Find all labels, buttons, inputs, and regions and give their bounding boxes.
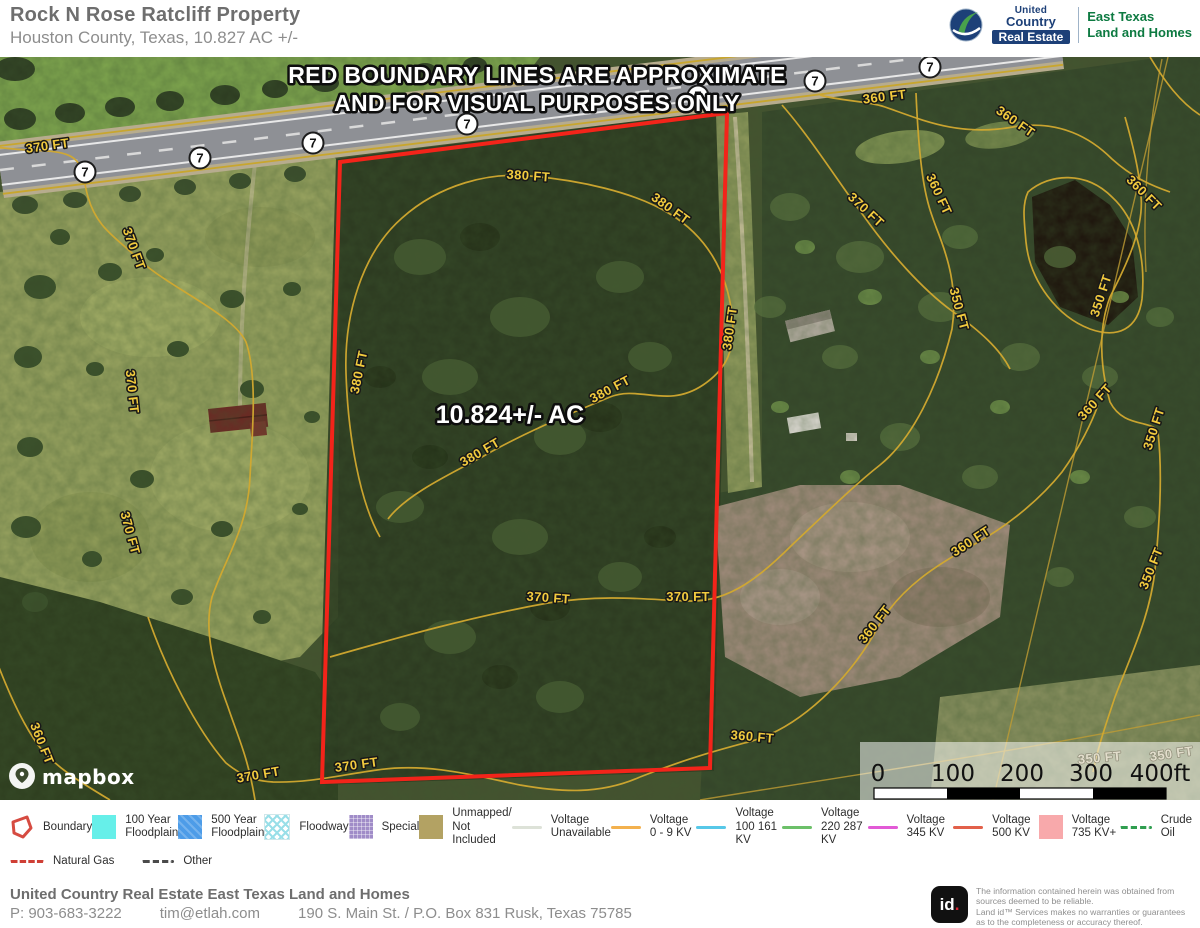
footer-contact-line: P: 903-683-3222tim@etlah.com190 S. Main … bbox=[10, 905, 670, 922]
other-line bbox=[142, 860, 174, 863]
floodplain-500-swatch bbox=[178, 815, 202, 839]
legend-label: Voltage 0 - 9 KV bbox=[650, 814, 697, 841]
highway-shield-number: 7 bbox=[926, 60, 933, 75]
legend-label: Voltage Unavailable bbox=[551, 814, 611, 841]
brand-word-country: Country bbox=[1006, 15, 1056, 28]
unmapped-swatch bbox=[419, 815, 443, 839]
legend-item-other: Other bbox=[142, 855, 212, 869]
division-line2: Land and Homes bbox=[1087, 25, 1192, 41]
legend-label: Voltage 500 KV bbox=[992, 814, 1039, 841]
disclaimer-line2: sources deemed to be reliable. bbox=[976, 896, 1194, 906]
logo-divider bbox=[1078, 7, 1079, 43]
footer-email[interactable]: tim@etlah.com bbox=[160, 905, 260, 922]
boundary-warning-line1: RED BOUNDARY LINES ARE APPROXIMATE bbox=[288, 62, 786, 88]
highway-shield-number: 7 bbox=[463, 117, 470, 132]
highway-shield-number: 7 bbox=[81, 165, 88, 180]
contour-elevation-label: 380 FT bbox=[506, 167, 551, 185]
division-line1: East Texas bbox=[1087, 9, 1192, 25]
legend-item-voltage-735: Voltage 735 KV+ bbox=[1039, 814, 1120, 841]
legend-label: Crude Oil bbox=[1161, 814, 1192, 841]
disclaimer-line4: as to the completeness or accuracy there… bbox=[976, 917, 1194, 927]
legend-item-boundary: Boundary bbox=[8, 814, 92, 840]
legend-item-500yr-floodplain: 500 Year Floodplain bbox=[178, 814, 264, 841]
map-canvas: 7777777 RED BOUNDARY LINES ARE APPROXIMA… bbox=[0, 57, 1200, 800]
highway-shield-number: 7 bbox=[196, 151, 203, 166]
footer-phone: P: 903-683-3222 bbox=[10, 905, 122, 922]
highway-shield-number: 7 bbox=[811, 74, 818, 89]
voltage-500-line bbox=[953, 826, 983, 829]
voltage-345-line bbox=[868, 826, 898, 829]
legend-label: Special bbox=[382, 821, 420, 835]
map-legend: Boundary 100 Year Floodplain 500 Year Fl… bbox=[0, 800, 1200, 868]
brand-real-estate-bar: Real Estate bbox=[992, 30, 1071, 44]
legend-label: 500 Year Floodplain bbox=[211, 814, 264, 841]
legend-label: Unmapped/ Not Included bbox=[452, 807, 511, 848]
legend-label: Voltage 345 KV bbox=[907, 814, 954, 841]
legend-item-voltage-500: Voltage 500 KV bbox=[953, 814, 1039, 841]
natural-gas-line bbox=[10, 860, 44, 863]
boundary-warning-line2: AND FOR VISUAL PURPOSES ONLY bbox=[334, 90, 740, 116]
floodway-swatch bbox=[264, 814, 290, 840]
footer-address: 190 S. Main St. / P.O. Box 831 Rusk, Tex… bbox=[298, 905, 632, 922]
scale-tick-300: 300 bbox=[1069, 761, 1113, 787]
legend-item-voltage-100-161: Voltage 100 161 KV bbox=[696, 807, 782, 848]
legend-row-1: Boundary 100 Year Floodplain 500 Year Fl… bbox=[0, 800, 1200, 848]
mapbox-wordmark: mapbox bbox=[42, 765, 135, 789]
legend-label: Natural Gas bbox=[53, 855, 114, 869]
legend-item-voltage-0-9: Voltage 0 - 9 KV bbox=[611, 814, 697, 841]
legend-label: Boundary bbox=[43, 821, 92, 835]
page-subtitle: Houston County, Texas, 10.827 AC +/- bbox=[10, 28, 298, 48]
legend-item-100yr-floodplain: 100 Year Floodplain bbox=[92, 814, 178, 841]
legend-label: Voltage 220 287 KV bbox=[821, 807, 868, 848]
aerial-map: 7777777 RED BOUNDARY LINES ARE APPROXIMA… bbox=[0, 57, 1200, 800]
legend-item-voltage-345: Voltage 345 KV bbox=[868, 814, 954, 841]
disclaimer-line3: Land id™ Services makes no warranties or… bbox=[976, 907, 1194, 917]
division-wordmark: East Texas Land and Homes bbox=[1087, 9, 1192, 40]
land-id-dot: . bbox=[955, 895, 960, 915]
land-id-text: id bbox=[940, 895, 955, 915]
contour-elevation-label: 370 FT bbox=[666, 589, 710, 604]
scale-tick-400ft: 400ft bbox=[1130, 761, 1191, 787]
page-header: Rock N Rose Ratcliff Property Houston Co… bbox=[0, 0, 1200, 57]
property-map-page: Rock N Rose Ratcliff Property Houston Co… bbox=[0, 0, 1200, 928]
footer-disclaimer-block: id. The information contained herein was… bbox=[931, 886, 1194, 928]
united-country-globe-icon bbox=[948, 7, 984, 43]
crude-oil-line bbox=[1120, 826, 1152, 829]
voltage-100-161-line bbox=[696, 826, 726, 829]
legend-label: Floodway bbox=[299, 821, 348, 835]
legend-item-special: Special bbox=[349, 815, 420, 839]
land-id-logo: id. bbox=[931, 886, 968, 923]
scale-tick-200: 200 bbox=[1000, 761, 1044, 787]
disclaimer-text: The information contained herein was obt… bbox=[976, 886, 1194, 928]
company-logo: United Country Real Estate East Texas La… bbox=[948, 6, 1192, 44]
scale-tick-100: 100 bbox=[931, 761, 975, 787]
united-country-wordmark: United Country Real Estate bbox=[992, 6, 1071, 44]
legend-item-floodway: Floodway bbox=[264, 814, 348, 840]
legend-label: Other bbox=[183, 855, 212, 869]
voltage-220-287-line bbox=[782, 826, 812, 829]
page-footer: United Country Real Estate East Texas La… bbox=[0, 868, 1200, 928]
acreage-label: 10.824+/- AC bbox=[436, 401, 584, 429]
legend-label: 100 Year Floodplain bbox=[125, 814, 178, 841]
disclaimer-line1: The information contained herein was obt… bbox=[976, 886, 1194, 896]
floodplain-100-swatch bbox=[92, 815, 116, 839]
voltage-735-swatch bbox=[1039, 815, 1063, 839]
footer-company-name: United Country Real Estate East Texas La… bbox=[10, 886, 410, 903]
legend-item-unmapped: Unmapped/ Not Included bbox=[419, 807, 511, 848]
highway-shield-number: 7 bbox=[309, 136, 316, 151]
legend-label: Voltage 100 161 KV bbox=[735, 807, 782, 848]
contour-elevation-label: 370 FT bbox=[526, 589, 571, 607]
boundary-swatch-icon bbox=[8, 814, 34, 840]
legend-item-natural-gas: Natural Gas bbox=[10, 855, 114, 869]
mapbox-logo[interactable]: mapbox bbox=[9, 763, 135, 789]
scale-tick-0: 0 bbox=[871, 761, 886, 787]
legend-item-crude-oil: Crude Oil bbox=[1120, 814, 1192, 841]
legend-item-voltage-unavailable: Voltage Unavailable bbox=[512, 814, 611, 841]
voltage-unavailable-line bbox=[512, 826, 542, 829]
legend-row-2: Natural Gas Other bbox=[0, 848, 1200, 869]
legend-label: Voltage 735 KV+ bbox=[1072, 814, 1120, 841]
legend-item-voltage-220-287: Voltage 220 287 KV bbox=[782, 807, 868, 848]
voltage-0-9-line bbox=[611, 826, 641, 829]
page-title: Rock N Rose Ratcliff Property bbox=[10, 4, 300, 27]
special-swatch bbox=[349, 815, 373, 839]
